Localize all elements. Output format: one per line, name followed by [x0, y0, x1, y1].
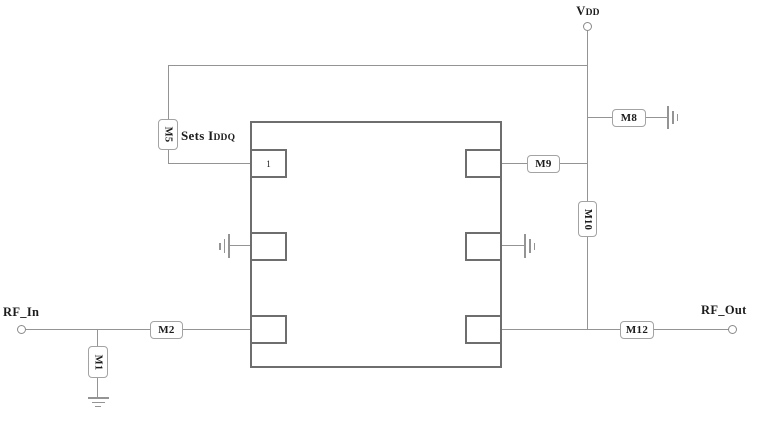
- rf-in-text: RF_In: [3, 305, 39, 319]
- wire-vdd-rail: [587, 31, 588, 330]
- rf-in-terminal-icon: [17, 325, 26, 334]
- transistor-m5-box: M5: [158, 119, 178, 150]
- wire-rf-out: [501, 329, 729, 330]
- transistor-m2-label: M2: [158, 324, 174, 336]
- chip-pin-right-top: [465, 149, 502, 178]
- chip-pin-left-bottom: [250, 315, 287, 344]
- rf-out-text: RF_Out: [701, 303, 747, 317]
- wire-left-mid-gnd: [228, 245, 252, 246]
- transistor-m10-label: M10: [582, 208, 593, 229]
- transistor-m8-box: M8: [612, 109, 646, 127]
- transistor-m8-label: M8: [621, 112, 637, 124]
- wire-loop-to-m5: [168, 65, 169, 120]
- rf-out-label: RF_Out: [701, 303, 747, 318]
- vdd-label-main: V: [576, 4, 585, 18]
- schematic-canvas: 1 M5 M1 M10 M2 M8 M9 M12: [0, 0, 779, 423]
- ground-icon: [667, 106, 679, 130]
- vdd-label: VDD: [570, 4, 606, 19]
- wire-m5-to-pin1: [168, 150, 169, 164]
- wire-right-mid-gnd: [501, 245, 525, 246]
- rf-out-terminal-icon: [728, 325, 737, 334]
- vdd-terminal-icon: [583, 22, 592, 31]
- sets-iddq-main: Sets I: [181, 128, 214, 143]
- transistor-m9-label: M9: [535, 158, 551, 170]
- chip-pin-left-top: 1: [250, 149, 287, 178]
- transistor-m12-label: M12: [626, 324, 648, 336]
- transistor-m12-box: M12: [620, 321, 654, 339]
- sets-iddq-annotation: Sets IDDQ: [181, 128, 235, 144]
- wire-m1-tap: [97, 329, 98, 347]
- wire-rf-in: [26, 329, 252, 330]
- wire-m1-gnd: [97, 377, 98, 398]
- transistor-m1-label: M1: [92, 354, 103, 370]
- sets-iddq-sub: DDQ: [214, 133, 236, 143]
- ground-icon: [87, 397, 109, 409]
- ground-icon: [524, 234, 536, 258]
- chip-pin-right-bottom: [465, 315, 502, 344]
- chip-pin-left-middle: [250, 232, 287, 261]
- wire-top-loop: [168, 65, 588, 66]
- transistor-m9-box: M9: [527, 155, 560, 173]
- transistor-m10-box: M10: [578, 201, 597, 237]
- wire-pin1-input: [168, 163, 252, 164]
- transistor-m1-box: M1: [88, 346, 108, 378]
- rf-in-label: RF_In: [3, 305, 39, 320]
- ground-icon: [218, 234, 230, 258]
- pin-number-label: 1: [266, 159, 271, 169]
- transistor-m5-label: M5: [162, 127, 173, 143]
- transistor-m2-box: M2: [150, 321, 183, 339]
- vdd-label-sub: DD: [586, 8, 600, 18]
- chip-pin-right-middle: [465, 232, 502, 261]
